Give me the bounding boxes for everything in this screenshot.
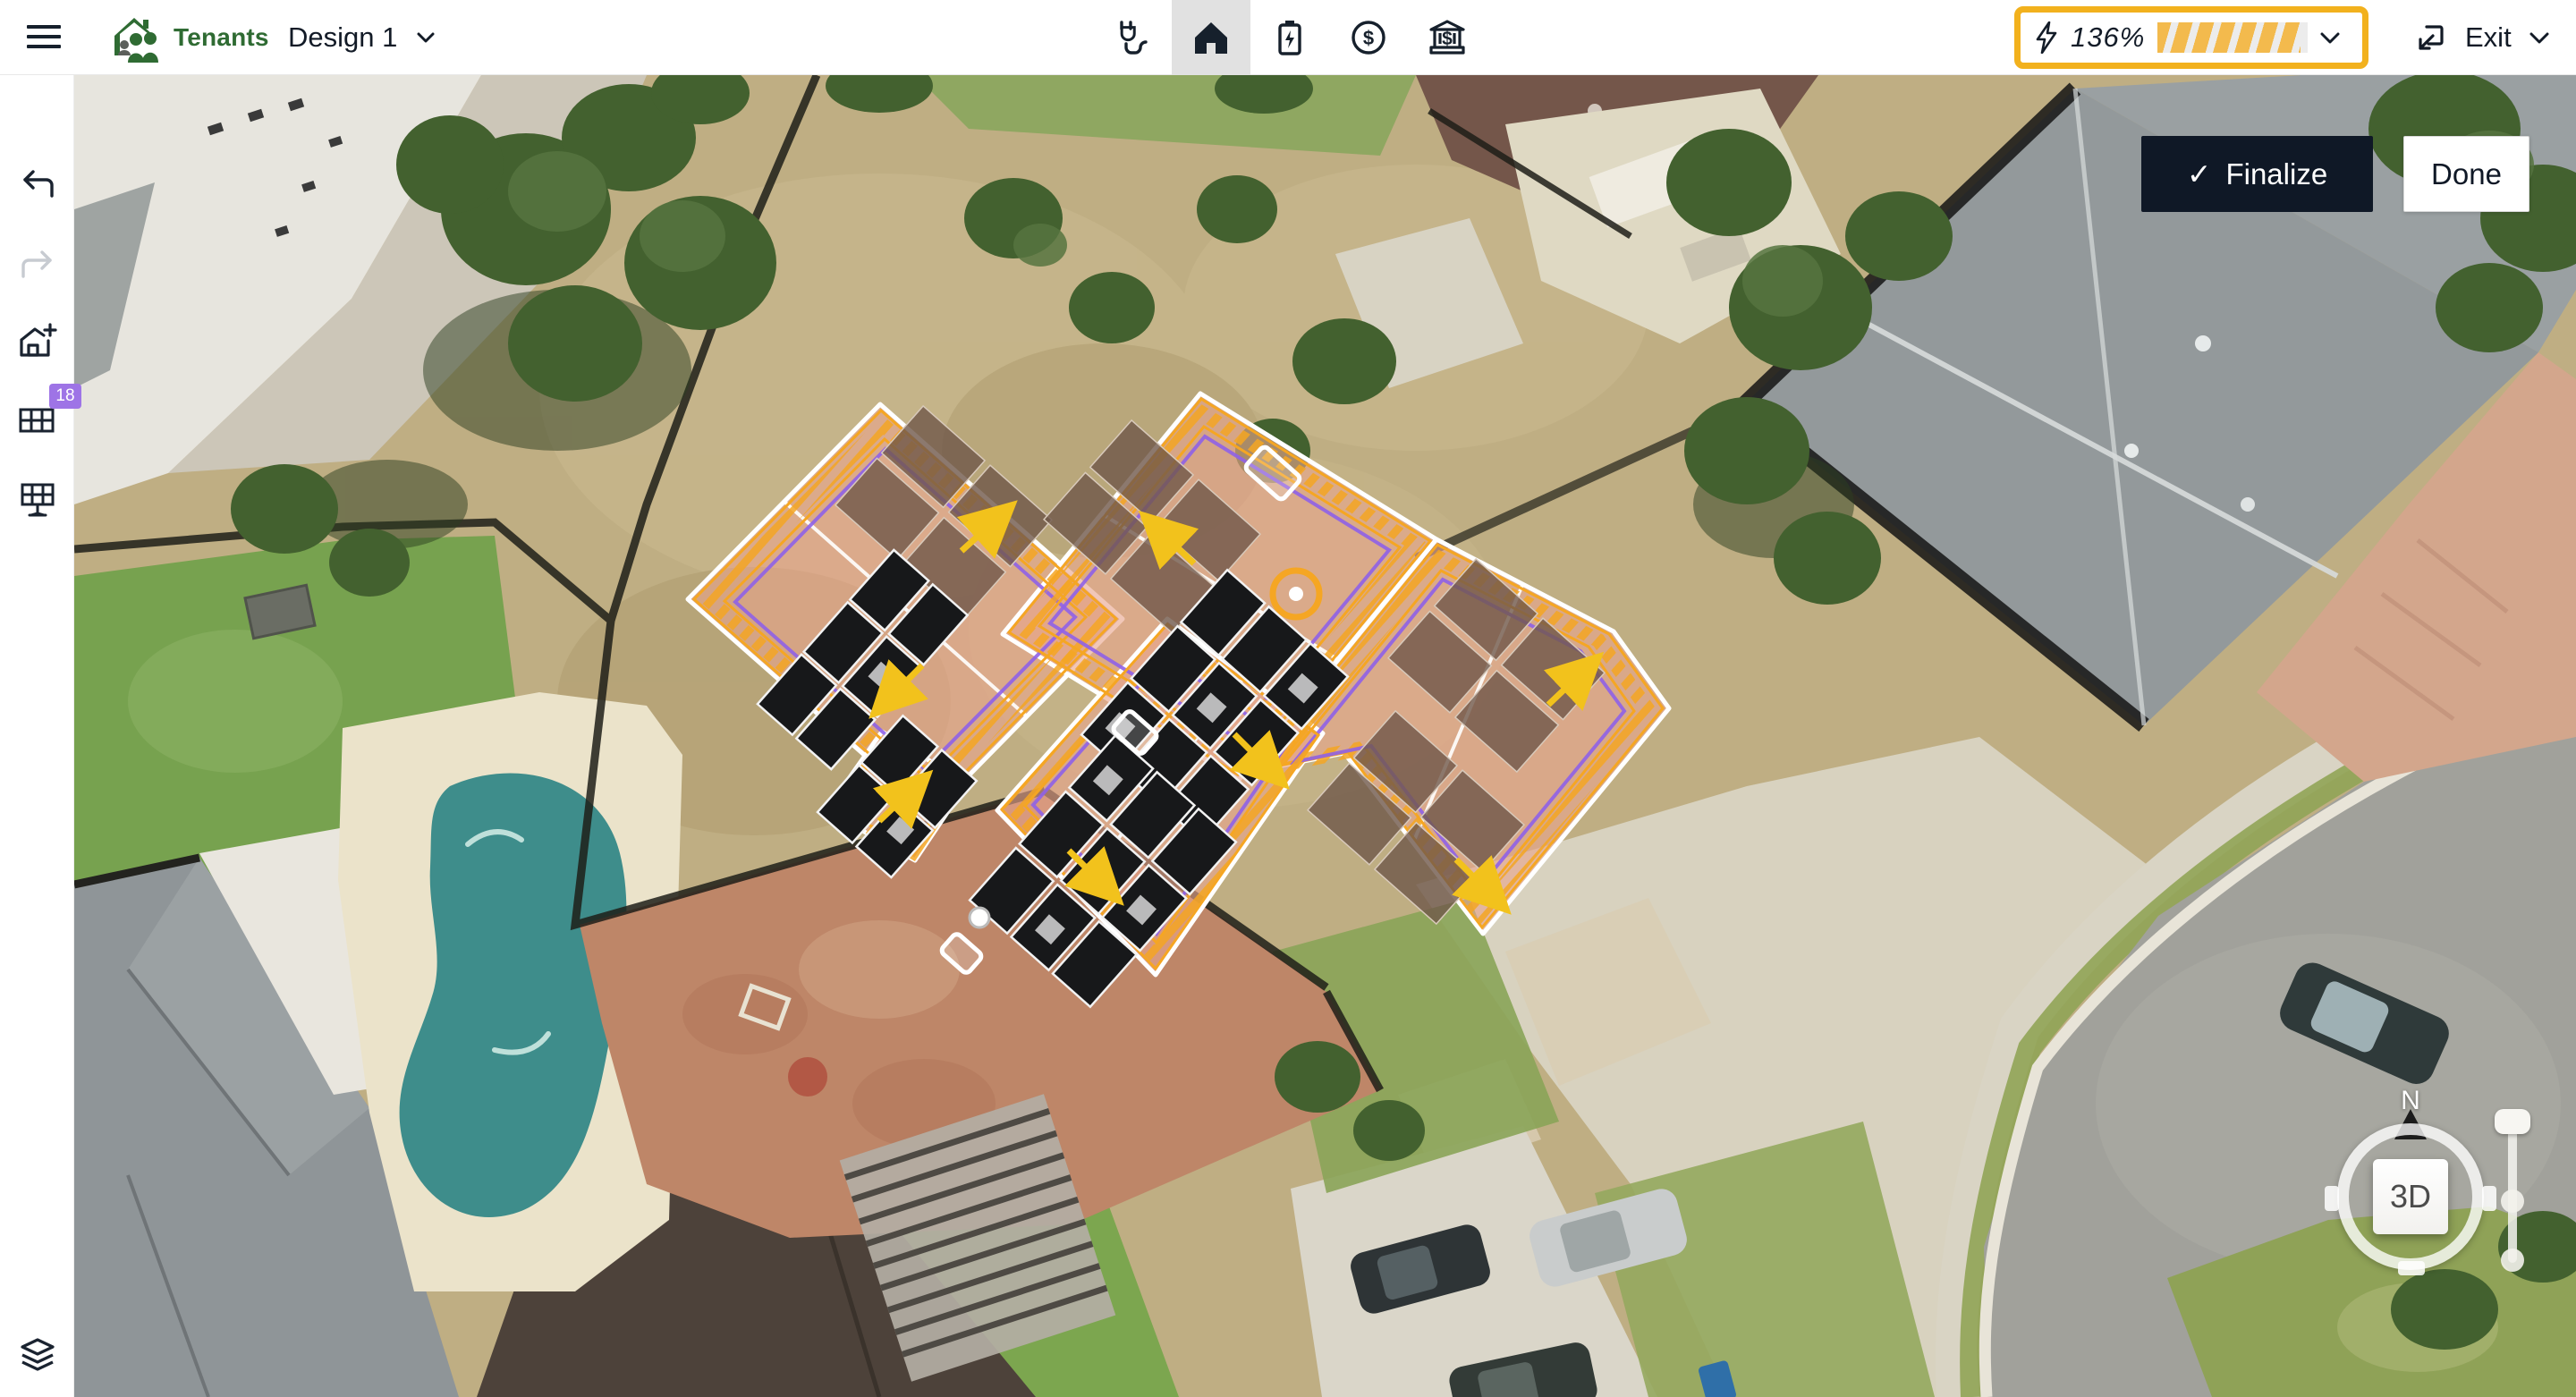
bank-dollar-icon: $ [1427, 18, 1468, 57]
layers-icon [17, 1335, 58, 1375]
panel-array-tool[interactable]: 18 [17, 400, 58, 441]
tab-incentives-bank[interactable]: $ [1408, 0, 1487, 75]
view-3d-button[interactable]: 3D [2373, 1159, 2448, 1234]
zoom-slider-handle[interactable] [2495, 1109, 2530, 1134]
compass-tick-south [2398, 1261, 2425, 1275]
bolt-icon [2035, 21, 2058, 54]
design-selector[interactable]: Design 1 [288, 0, 435, 75]
done-label: Done [2431, 157, 2502, 191]
solar-panel-icon [17, 479, 58, 521]
production-meter-bar [2157, 22, 2308, 53]
home-icon [1191, 18, 1231, 57]
top-bar: Tenants Design 1 $ [0, 0, 2576, 75]
compass-tick-west [2325, 1186, 2339, 1211]
zoom-slider-mid-stop[interactable] [2501, 1190, 2524, 1213]
chevron-down-icon [2320, 32, 2340, 44]
tab-home-design[interactable] [1172, 0, 1250, 75]
design-mode-tabs: $ $ [1093, 0, 1487, 75]
panel-count-badge: 18 [49, 384, 81, 409]
undo-button[interactable] [17, 165, 58, 206]
roof-point-center [1289, 587, 1303, 601]
tab-pricing-dollar[interactable]: $ [1329, 0, 1408, 75]
chevron-down-icon [2529, 32, 2549, 44]
redo-button[interactable] [17, 245, 58, 286]
redo-icon [18, 248, 57, 284]
exit-menu[interactable]: Exit [2415, 0, 2549, 75]
dollar-circle-icon: $ [1349, 18, 1388, 57]
zoom-slider-end-stop[interactable] [2501, 1249, 2524, 1272]
compass-widget[interactable]: N 3D [2312, 1086, 2509, 1309]
svg-text:$: $ [1363, 27, 1374, 49]
menu-hamburger-icon[interactable] [27, 25, 61, 50]
roof-node[interactable] [970, 908, 989, 927]
chevron-down-icon [417, 32, 435, 43]
production-meter-fill [2157, 22, 2301, 53]
tenants-logo-icon [109, 13, 165, 63]
layers-button[interactable] [17, 1334, 58, 1376]
svg-text:$: $ [1442, 29, 1453, 49]
solar-table-tool[interactable] [17, 479, 58, 521]
battery-icon [1270, 18, 1309, 57]
design-selector-label: Design 1 [288, 21, 397, 54]
tab-battery-storage[interactable] [1250, 0, 1329, 75]
check-icon: ✓ [2187, 157, 2212, 191]
exit-label: Exit [2465, 21, 2512, 54]
map-canvas[interactable]: ✓ Finalize Done N 3D [74, 75, 2576, 1397]
undo-icon [18, 167, 57, 203]
exit-icon [2415, 21, 2447, 54]
finalize-button[interactable]: ✓ Finalize [2141, 136, 2373, 212]
tab-consumption-plug-icon[interactable] [1093, 0, 1172, 75]
production-meter[interactable]: 136% [2014, 6, 2368, 69]
satellite-map [74, 75, 2576, 1397]
left-toolbar: 18 [0, 75, 74, 1397]
zoom-slider[interactable] [2489, 1104, 2536, 1283]
production-meter-value: 136% [2071, 21, 2145, 54]
add-structure-button[interactable] [17, 321, 58, 362]
house-add-icon [17, 322, 58, 361]
finalize-label: Finalize [2225, 157, 2327, 191]
app-logo: Tenants [109, 11, 269, 64]
done-button[interactable]: Done [2403, 136, 2529, 212]
logo-text: Tenants [174, 23, 269, 52]
